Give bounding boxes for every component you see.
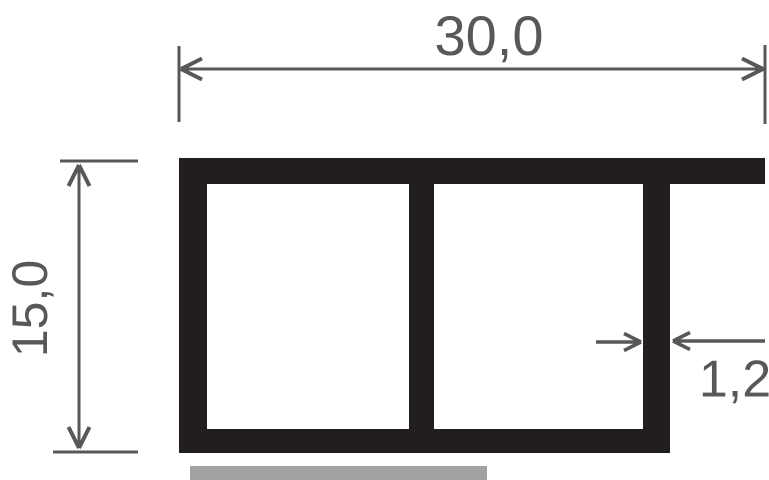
svg-text:1,2: 1,2: [699, 351, 769, 409]
svg-text:30,0: 30,0: [435, 4, 544, 67]
svg-text:15,0: 15,0: [2, 260, 58, 357]
